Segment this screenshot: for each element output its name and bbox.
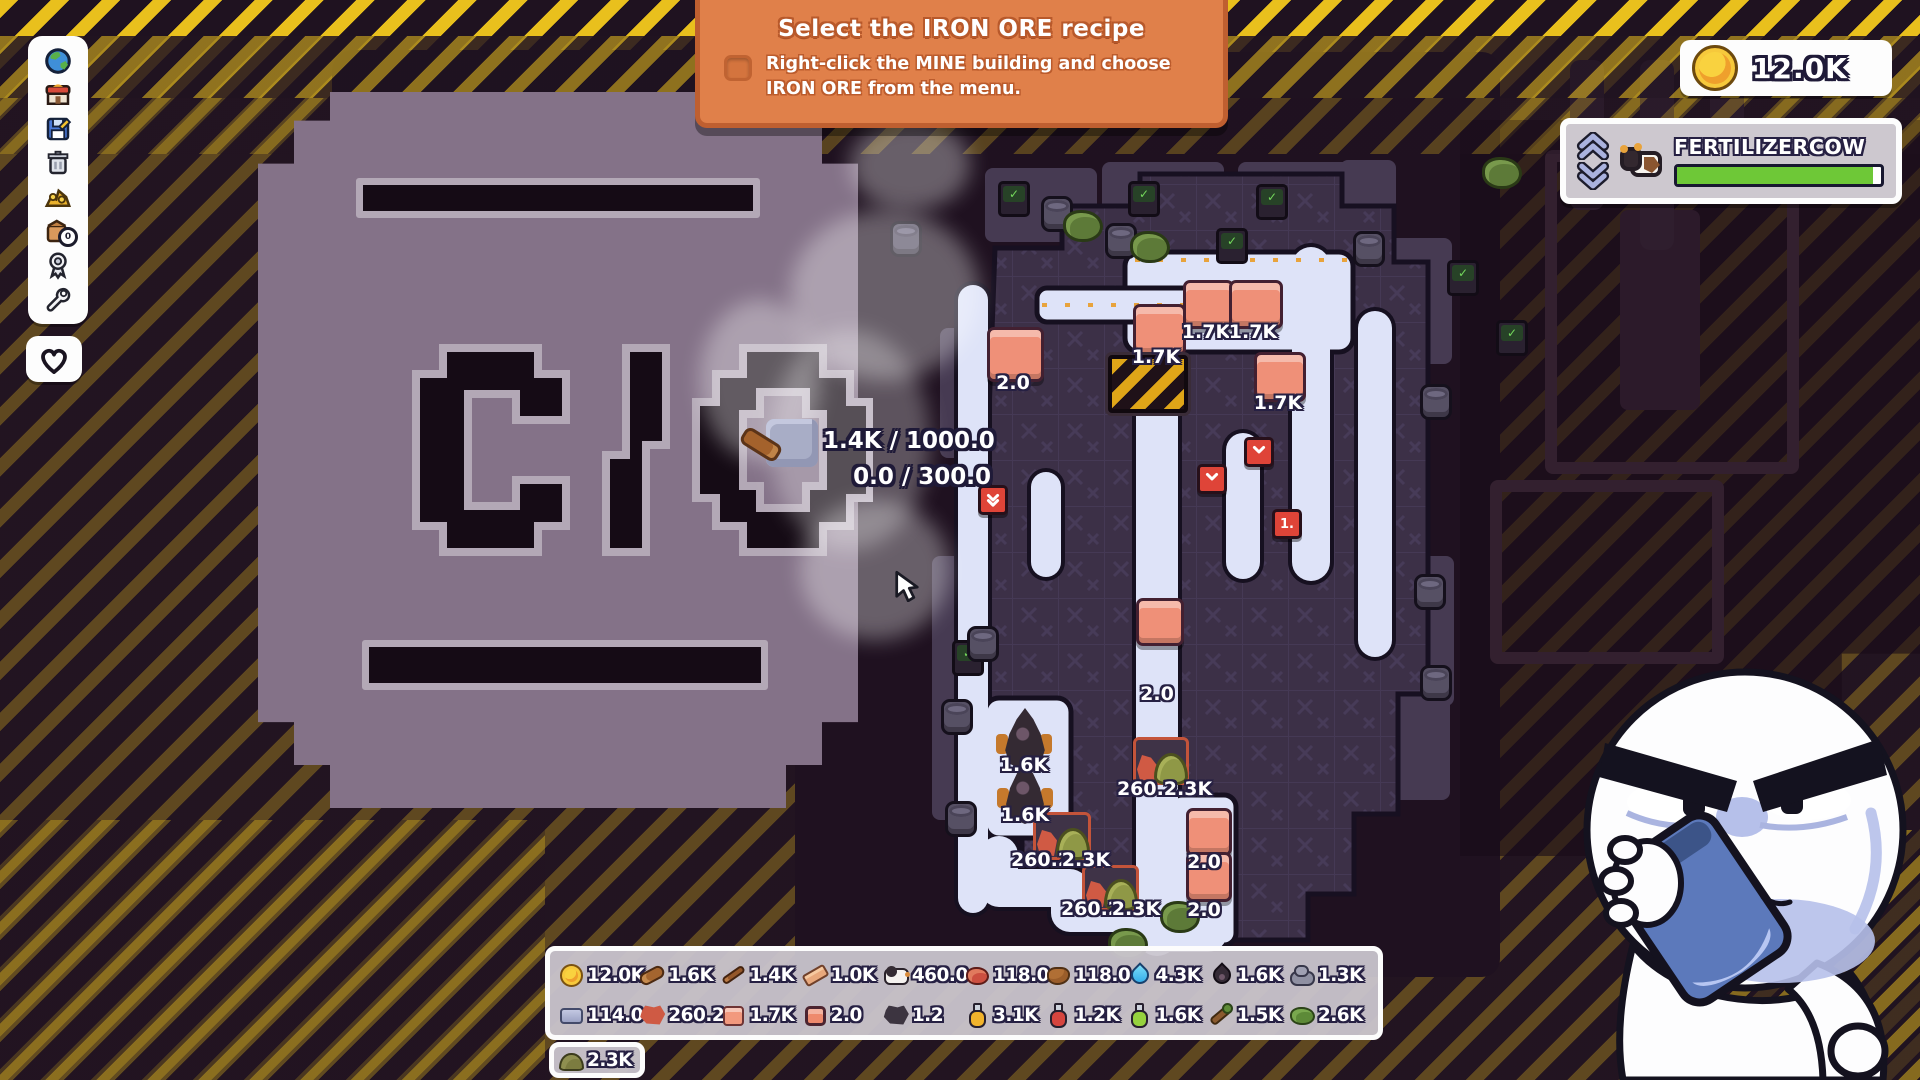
toolbar: 0 (28, 36, 88, 324)
resource-panel: 12.0K1.6K1.4K1.0K460.0118.0118.04.3K1.6K… (545, 946, 1383, 1040)
potion_yellow-icon (964, 1002, 991, 1029)
world-button[interactable] (36, 44, 80, 78)
barrel-decoration (1420, 665, 1452, 701)
gold-pile-icon (43, 182, 73, 212)
shop-icon (43, 80, 73, 110)
inventory-button[interactable]: 0 (36, 214, 80, 248)
iron-ore-tile-icon (766, 419, 818, 467)
resource-value: 1.4K (749, 965, 794, 986)
trash-button[interactable] (36, 146, 80, 180)
resource-value: 460.0 (912, 965, 968, 986)
creature-panel: FERTILIZERCOW (1560, 118, 1902, 204)
creature-up-button[interactable] (1574, 132, 1612, 160)
game-viewport: 2.01.7K1.7K1.7K1.7K2.01.6K1.6K260.22.3K2… (0, 0, 1920, 1080)
coal-icon (883, 1002, 910, 1029)
map-count-label: 1.7K (1132, 346, 1180, 368)
copper-block[interactable] (1186, 808, 1232, 856)
resource-oil: 1.6K (1208, 962, 1289, 989)
monitor-decoration (1216, 228, 1248, 264)
potion_red-icon (1045, 1002, 1072, 1029)
barrel-decoration (967, 626, 999, 662)
mascot-character (1555, 645, 1920, 1080)
potion_green-icon (1126, 1002, 1153, 1029)
trash-icon (43, 148, 73, 178)
resource-value: 1.6K (1237, 965, 1282, 986)
resource-value: 1.6K (1155, 1005, 1200, 1026)
resource-fertilizer: 2.3K (558, 1047, 636, 1074)
floppy-disk-icon (43, 114, 73, 144)
cow-icon (883, 962, 910, 989)
resource-value: 1.5K (1237, 1005, 1282, 1026)
resource-value: 1.6K (668, 965, 713, 986)
resource-coin: 12.0K (558, 962, 639, 989)
quest-title: Select the IRON ORE recipe (700, 16, 1223, 42)
oil-icon (1208, 962, 1235, 989)
map-count-label: 2.0 (1187, 899, 1221, 921)
map-count-label: 1.7K (1229, 321, 1277, 343)
map-count-label: 2.0 (1187, 851, 1221, 873)
resource-stone: 1.3K (1289, 962, 1370, 989)
resource-value: 2.0 (831, 1005, 862, 1026)
coin-value: 12.0K (1752, 52, 1848, 85)
quest-line-2: IRON ORE from the menu. (766, 77, 1171, 102)
map-count-label: 2.3K (1164, 778, 1212, 800)
stick-icon (720, 962, 747, 989)
achievements-button[interactable] (36, 248, 80, 282)
iron_ingot-icon (558, 1002, 585, 1029)
resource-row: 114.0260.21.7K2.01.23.1K1.2K1.6K1.5K2.6K (558, 995, 1370, 1035)
barrel-decoration (941, 699, 973, 735)
monitor-decoration (1256, 184, 1288, 220)
quest-line-1: Right-click the MINE building and choose (766, 52, 1171, 77)
barrel-decoration (1420, 384, 1452, 420)
resource-value: 2.6K (1318, 1005, 1363, 1026)
resource-log: 1.6K (639, 962, 720, 989)
resource-value: 114.0 (587, 1005, 643, 1026)
resource-value: 260.2 (668, 1005, 724, 1026)
resource-potion_green: 1.6K (1126, 1002, 1207, 1029)
monitor-decoration (1496, 320, 1528, 356)
cow-icon (1618, 141, 1666, 181)
map-count-label: 1.6K (1001, 804, 1049, 826)
resource-value: 118.0 (1074, 965, 1130, 986)
storage-line-1: 1.4K / 1000.0 (823, 423, 991, 459)
heart-button[interactable] (26, 336, 82, 382)
creature-down-button[interactable] (1574, 162, 1612, 190)
resource-leather: 118.0 (1045, 962, 1126, 989)
resource-potion_yellow: 3.1K (964, 1002, 1045, 1029)
resource-value: 1.3K (1318, 965, 1363, 986)
resource-stick: 1.4K (720, 962, 801, 989)
monitor-decoration (1447, 260, 1479, 296)
map-count-label: 1.6K (1000, 754, 1048, 776)
priority-marker[interactable]: 1. (1272, 509, 1302, 539)
resource-value: 1.2 (912, 1005, 943, 1026)
monitor-decoration (998, 181, 1030, 217)
award-ribbon-icon (43, 250, 73, 280)
resource-value: 3.1K (993, 1005, 1038, 1026)
priority-marker[interactable] (1197, 464, 1227, 494)
barrel-decoration (890, 221, 922, 257)
copper_block-icon (802, 1002, 829, 1029)
plank-icon (802, 962, 829, 989)
resource-value: 1.7K (749, 1005, 794, 1026)
wrench-icon (43, 284, 73, 314)
log-icon (639, 962, 666, 989)
resource-meat: 118.0 (964, 962, 1045, 989)
resource-cow: 460.0 (883, 962, 964, 989)
globe-icon (43, 46, 73, 76)
copper_plate-icon (720, 1002, 747, 1029)
resource-value: 118.0 (993, 965, 1049, 986)
shop-button[interactable] (36, 78, 80, 112)
resource-copper_plate: 1.7K (720, 1002, 801, 1029)
resource-copper_ore: 260.2 (639, 1002, 720, 1029)
barrel-decoration (1414, 574, 1446, 610)
coin-counter: 12.0K (1680, 40, 1892, 96)
leaves-icon (1289, 1002, 1316, 1029)
bush-decoration (1482, 157, 1522, 189)
resource-value: 1.2K (1074, 1005, 1119, 1026)
meat-icon (964, 962, 991, 989)
barrel-decoration (945, 801, 977, 837)
resource-iron_ingot: 114.0 (558, 1002, 639, 1029)
sapling-icon (1208, 1002, 1235, 1029)
resource-copper_block: 2.0 (802, 1002, 883, 1029)
copper_ore-icon (639, 1002, 666, 1029)
map-count-label: 2.3K (1112, 898, 1160, 920)
resource-coal: 1.2 (883, 1002, 964, 1029)
map-count-label: 1.7K (1182, 321, 1230, 343)
creature-progress-fill (1677, 167, 1873, 184)
treasure-button[interactable] (36, 180, 80, 214)
save-button[interactable] (36, 112, 80, 146)
water-icon (1126, 962, 1153, 989)
resource-value: 2.3K (587, 1050, 632, 1071)
map-count-label: 2.0 (996, 372, 1030, 394)
leather-icon (1045, 962, 1072, 989)
inventory-badge: 0 (58, 227, 78, 247)
copper-block[interactable] (1136, 598, 1184, 646)
map-count-label: 2.3K (1062, 849, 1110, 871)
quest-checkbox[interactable] (724, 55, 752, 81)
bush-decoration (1130, 231, 1170, 263)
coin-icon (558, 962, 585, 989)
tools-button[interactable] (36, 282, 80, 316)
bush-decoration (1063, 210, 1103, 242)
resource-row: 12.0K1.6K1.4K1.0K460.0118.0118.04.3K1.6K… (558, 955, 1370, 995)
stone-icon (1289, 962, 1316, 989)
resource-value: 1.0K (831, 965, 876, 986)
creature-name: FERTILIZERCOW (1674, 135, 1896, 159)
quest-banner: Select the IRON ORE recipe Right-click t… (695, 0, 1228, 128)
heart-icon (36, 343, 72, 375)
monitor-decoration (1128, 181, 1160, 217)
mouse-cursor (893, 570, 921, 602)
coin-icon (1692, 45, 1738, 91)
creature-progress-bar (1674, 164, 1884, 187)
storage-line-2: 0.0 / 300.0 (823, 459, 991, 495)
priority-marker[interactable] (1244, 437, 1274, 467)
resource-potion_red: 1.2K (1045, 1002, 1126, 1029)
resource-value: 12.0K (587, 965, 644, 986)
resource-value: 4.3K (1155, 965, 1200, 986)
resource-leaves: 2.6K (1289, 1002, 1370, 1029)
barrel-decoration (1353, 231, 1385, 267)
map-count-label: 1.7K (1254, 392, 1302, 414)
resource-plank: 1.0K (802, 962, 883, 989)
map-count-label: 2.0 (1140, 683, 1174, 705)
resource-row: 2.3K (549, 1042, 645, 1078)
fertilizer-icon (558, 1047, 585, 1074)
resource-sapling: 1.5K (1208, 1002, 1289, 1029)
resource-water: 4.3K (1126, 962, 1207, 989)
